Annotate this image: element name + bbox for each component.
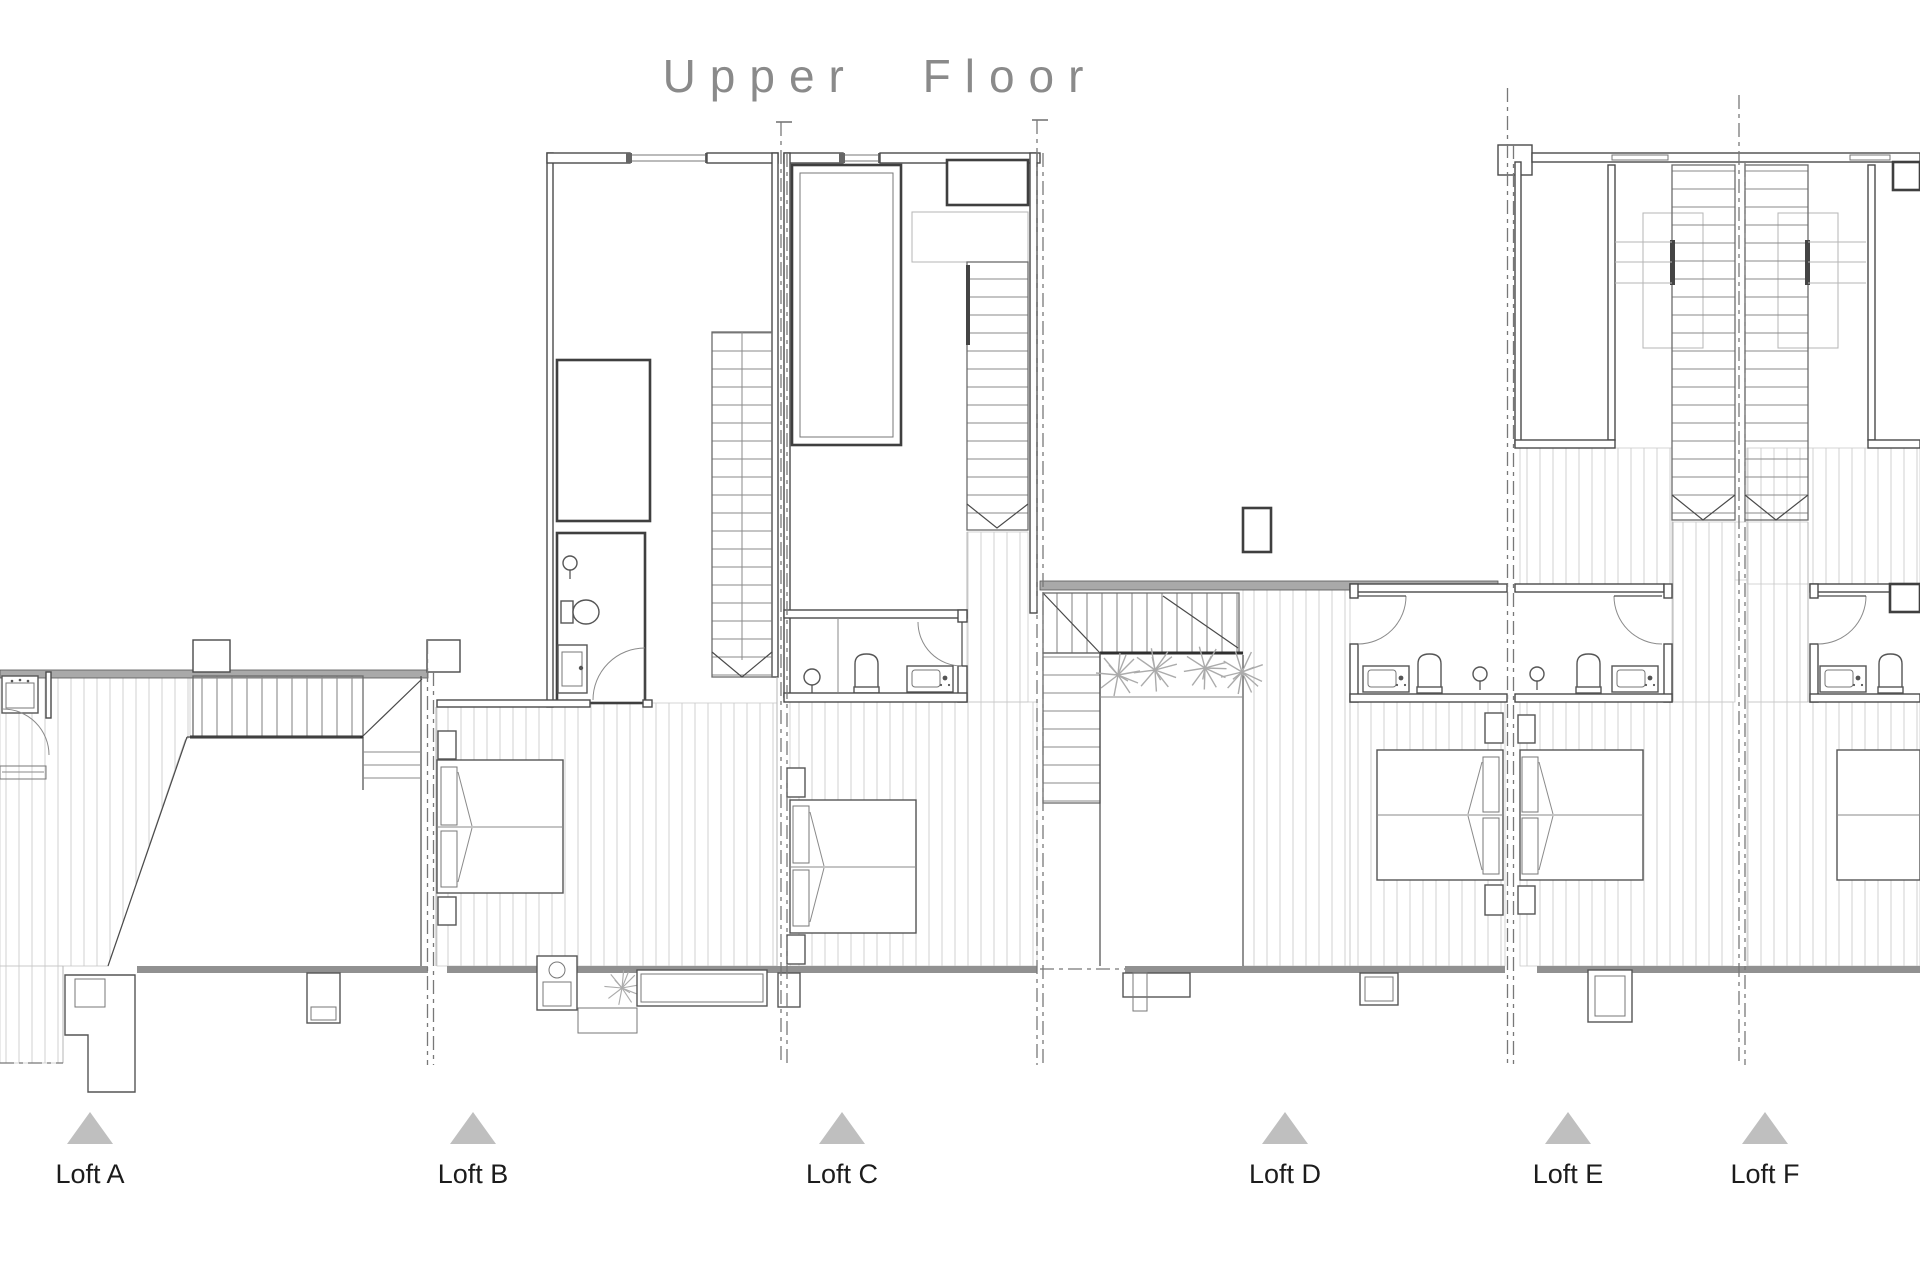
loft-e-bathroom-top-wall [1515, 584, 1664, 592]
loft-c-right-wall [1030, 153, 1037, 613]
loft-a-label: Loft A [55, 1159, 124, 1189]
loft-d-nightstand [1485, 885, 1503, 915]
loft-f-stair-shaft [1745, 165, 1808, 520]
loft-a-wall-post [193, 640, 230, 672]
loft-d-stair-lower-run [1043, 653, 1100, 803]
loft-f-bathroom-bottom-wall [1810, 694, 1920, 702]
loft-c-window [843, 155, 880, 161]
terrace-band [65, 956, 1920, 1092]
loft-b-left-wall [547, 153, 553, 707]
loft-b-planter [637, 970, 767, 1006]
loft-b-shower-fixture-icon [563, 556, 577, 570]
loft-b-top-wall [547, 153, 630, 163]
loft-f-marker [1742, 1112, 1788, 1144]
loft-d-toilet-icon [1417, 654, 1442, 693]
loft-a-deck [0, 676, 190, 966]
loft-d-label: Loft D [1249, 1159, 1321, 1189]
loft-b-marker [450, 1112, 496, 1144]
loft-e-toilet-icon [1576, 654, 1601, 693]
loft-e-marker [1545, 1112, 1591, 1144]
loft-c-upper-room [792, 165, 901, 445]
loft-c-stair-upper-flight [912, 212, 1028, 262]
loft-f-bathroom [1810, 584, 1920, 702]
loft-d-deck [1243, 590, 1350, 966]
plant-icon [1096, 653, 1140, 696]
loft-b-toilet-tank [561, 601, 573, 623]
loft-c-nightstand [787, 768, 805, 797]
loft-e-vanity-icon [1612, 666, 1658, 692]
loft-c-stair-handrail [966, 265, 970, 345]
plant-icon [604, 970, 639, 1004]
loft-e-bathroom [1515, 584, 1672, 702]
loft-b-bedroom-wall [437, 700, 590, 707]
loft-c-top-wall [784, 153, 843, 163]
loft-f-bath-door-arc [1818, 596, 1866, 644]
loft-a-marker [67, 1112, 113, 1144]
loft-b-toilet-icon [573, 600, 599, 624]
loft-a-deck-lower [0, 966, 63, 1063]
loft-d-stair-run [1043, 593, 1239, 653]
loft-d-bathroom [1350, 584, 1507, 702]
loft-c-marker [819, 1112, 865, 1144]
loft-c-bath-door-arc [918, 622, 962, 666]
loft-e-room-bottom-wall [1515, 440, 1615, 448]
loft-f-room-bottom-wall [1868, 440, 1920, 448]
loft-a-bottom-wall [137, 966, 428, 973]
loft-c-stair-shaft [967, 262, 1028, 530]
loft-e-bath-door-arc [1614, 596, 1662, 644]
loft-c-basin-icon [804, 669, 820, 685]
loft-b-closet-room [557, 360, 650, 521]
loft-c-nightstand [787, 935, 805, 964]
loft-a-stair-winder [363, 679, 422, 736]
loft-b-top-wall-2 [707, 153, 778, 163]
loft-c-vanity-icon [907, 666, 953, 692]
loft-b-label: Loft B [438, 1159, 509, 1189]
loft-b-nightstand [438, 731, 456, 759]
loft-e-nightstand [1518, 886, 1535, 914]
loft-d-basin-icon [1473, 667, 1487, 681]
loft-b-nightstand [438, 897, 456, 925]
loft-e-label: Loft E [1533, 1159, 1604, 1189]
loft-d-marker [1262, 1112, 1308, 1144]
loft-f-bed [1837, 750, 1920, 880]
loft-a-sink [2, 676, 38, 713]
loft-f-room-left-wall [1868, 165, 1875, 440]
loft-d-bath-door-arc [1358, 596, 1406, 644]
loft-a-stair-run [193, 676, 363, 737]
loft-e-stair-corridor [1672, 522, 1735, 702]
party-wall-post-ab [427, 640, 460, 672]
loft-c-label: Loft C [806, 1159, 878, 1189]
loft-d-vanity-icon [1363, 666, 1409, 692]
loft-d-chimney [1243, 508, 1271, 552]
loft-d-bathroom-top-wall [1350, 584, 1507, 592]
loft-f-vanity-icon [1820, 666, 1866, 692]
loft-e-landing-floor [1520, 448, 1672, 584]
loft-d-terrace-post-2 [1360, 973, 1398, 1005]
loft-a-bath-wall [46, 672, 51, 718]
loft-f-bath-closet [1890, 584, 1920, 612]
loft-d-bottom-wall [1125, 966, 1505, 973]
loft-ef-top-wall [1532, 153, 1920, 162]
page-title: Upper Floor [663, 50, 1098, 102]
loft-d-nightstand [1485, 713, 1503, 743]
unit-markers: Loft A Loft B Loft C Loft D Loft E Loft … [55, 1112, 1799, 1189]
loft-a-terrace-post [307, 973, 340, 1023]
loft-e-nightstand [1518, 715, 1535, 743]
loft-e-room-right-wall [1608, 165, 1615, 440]
loft-f-toilet-icon [1878, 654, 1903, 693]
loft-c-bathroom-bottom-wall [784, 693, 967, 702]
floor-plan-drawing: Upper Floor [0, 0, 1920, 1280]
loft-f-closet [1893, 162, 1920, 190]
loft-b-window [630, 155, 707, 161]
loft-b-right-wall [772, 153, 778, 677]
loft-e-room-left-wall [1515, 162, 1521, 445]
loft-c-stair-landing [967, 532, 1028, 702]
loft-d-bathroom-bottom-wall [1350, 694, 1507, 702]
loft-c-closet [947, 160, 1028, 205]
loft-e-basin-icon [1530, 667, 1544, 681]
loft-c-toilet-icon [854, 654, 879, 693]
loft-c-bathroom-top-wall [784, 610, 967, 618]
loft-e-bathroom-bottom-wall [1515, 694, 1672, 702]
loft-f-label: Loft F [1730, 1159, 1799, 1189]
floor-plan-sheet: Upper Floor [0, 0, 1920, 1280]
loft-e-stair-shaft [1672, 165, 1735, 520]
